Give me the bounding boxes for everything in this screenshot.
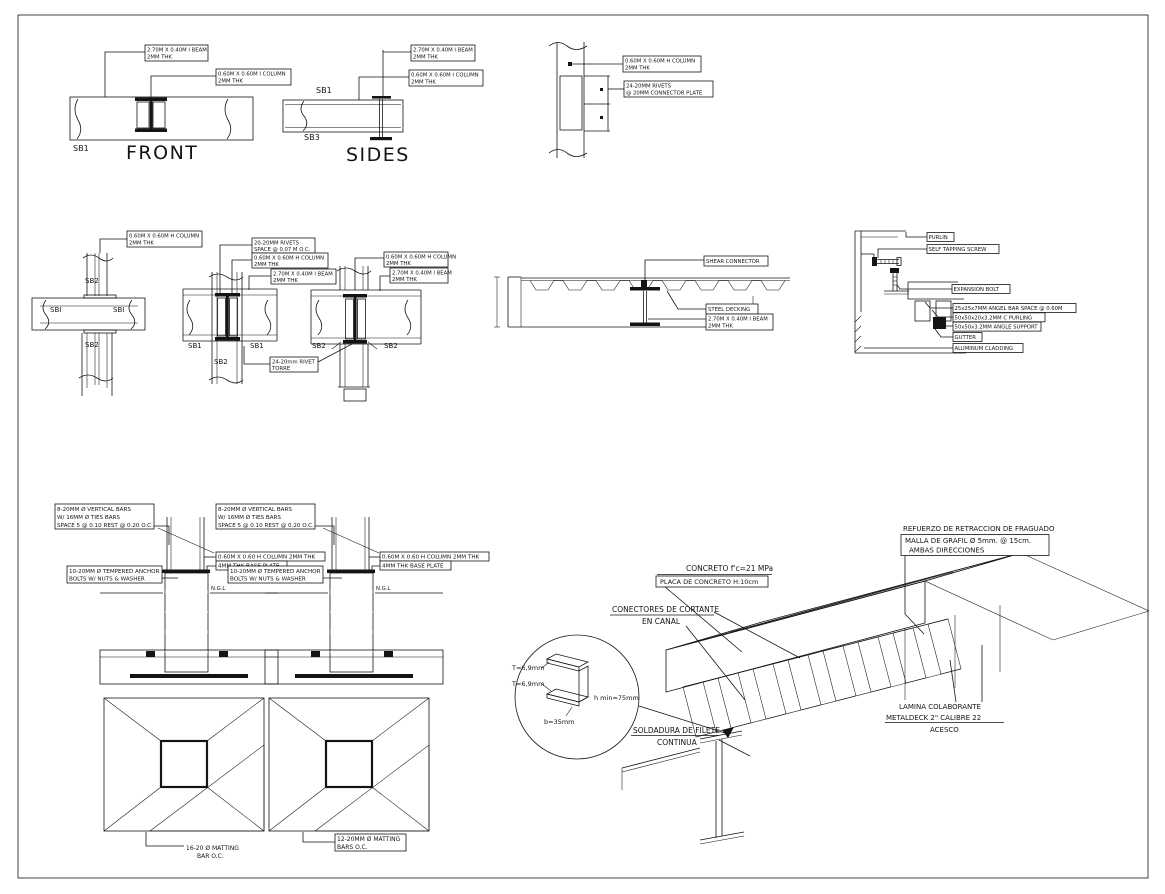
svg-text:SB2: SB2 <box>384 342 398 350</box>
svg-text:SPACE 5 @ 0.10 REST @ 0.20 O.C: SPACE 5 @ 0.10 REST @ 0.20 O.C. <box>57 523 153 529</box>
svg-text:SB2: SB2 <box>214 358 228 366</box>
soldadura-label: SOLDADURA DE FILETE <box>633 726 720 735</box>
dim-h: h min=75mm <box>594 694 639 702</box>
column-splice-detail: 0.60M X 0.60M H COLUMN 2MM THK 24-20MM R… <box>549 42 713 158</box>
dim-t1: T=6,9mm <box>511 664 544 672</box>
anchor-bolt <box>146 651 155 657</box>
footing <box>265 650 443 684</box>
conectores-label: CONECTORES DE CORTANTE <box>612 605 719 614</box>
tag-sb3: SB3 <box>304 133 320 142</box>
svg-text:SB2: SB2 <box>85 341 99 349</box>
column-top-flange <box>372 96 391 99</box>
c-purlin-label: 50x50x20x3.2MM C PURLING <box>955 315 1033 321</box>
joint-b-column-label: 0.60M X 0.60M H COLUMN <box>386 255 456 261</box>
svg-text:W/ 16MM Ø TIES BARS: W/ 16MM Ø TIES BARS <box>57 514 120 521</box>
wire-mesh <box>925 553 1149 640</box>
expansion-bolt-label: EXPANSION BOLT <box>954 287 1000 293</box>
tag-sb1: SB1 <box>73 144 89 153</box>
svg-text:2MM THK: 2MM THK <box>708 324 733 330</box>
ngl-label: N.G.L <box>376 586 390 592</box>
svg-text:BOLTS W/ NUTS & WASHER: BOLTS W/ NUTS & WASHER <box>230 577 306 583</box>
svg-text:2MM THK: 2MM THK <box>273 278 298 284</box>
purlin-label: PURLIN <box>929 235 948 241</box>
angel-bar-label: 25x25x7MM ANGEL BAR SPACE @ 0.60M <box>955 306 1063 312</box>
lamina-label: LAMINA COLABORANTE <box>899 703 981 711</box>
column-bottom-flange <box>370 137 392 140</box>
base-plate <box>327 570 375 574</box>
vertical-bars-label: 8-20MM Ø VERTICAL BARS <box>57 506 131 513</box>
angle-support-label: 50x50x3.2MM ANGLE SUPPORT <box>955 325 1039 331</box>
c-purlin <box>915 301 930 321</box>
bolt-head <box>872 257 877 266</box>
ngl-label: N.G.L <box>211 586 225 592</box>
anchor-bolts-label: 10-20MM Ø TEMPERED ANCHOR <box>230 568 321 575</box>
column-plan <box>326 741 372 787</box>
sides-title: SIDES <box>346 144 410 166</box>
svg-text:@ 20MM CONNECTOR PLATE: @ 20MM CONNECTOR PLATE <box>626 91 703 97</box>
footing <box>100 650 278 684</box>
svg-text:AMBAS DIRECCIONES: AMBAS DIRECCIONES <box>909 547 985 555</box>
splice-column-label: 0.60M X 0.60M H COLUMN <box>625 59 695 65</box>
front-column-label: 0.60M X 0.60M I COLUMN <box>218 72 286 78</box>
sides-column-label: 0.60M X 0.60M I COLUMN <box>411 73 479 79</box>
svg-text:BAR O.C.: BAR O.C. <box>197 853 224 860</box>
svg-text:SBI: SBI <box>113 306 124 314</box>
bolt-head <box>890 268 899 273</box>
connector-plate <box>560 76 582 130</box>
column-web <box>150 101 153 130</box>
cad-sheet: 2.70M X 0.40M I BEAM 2MM THK 0.60M X 0.6… <box>0 0 1165 894</box>
matting-band <box>295 674 413 678</box>
svg-text:2MM THK: 2MM THK <box>392 277 417 283</box>
joint-a-column-label: 0.60M X 0.60M H COLUMN <box>254 256 324 262</box>
vertical-bars-label: 8-20MM Ø VERTICAL BARS <box>218 506 292 513</box>
sides-view: 2.70M X 0.40M I BEAM 2MM THK 0.60M X 0.6… <box>283 45 483 166</box>
svg-text:METALDECK 2" CALIBRE 22: METALDECK 2" CALIBRE 22 <box>886 714 981 722</box>
svg-text:SPACE 5 @ 0.10 REST @ 0.20 O.C: SPACE 5 @ 0.10 REST @ 0.20 O.C. <box>218 523 314 529</box>
splice-rivets-label: 24-20MM RIVETS <box>626 84 672 90</box>
svg-text:CONTINUA: CONTINUA <box>657 738 698 747</box>
matting-label: 16-20 Ø MATTING <box>186 845 239 852</box>
concrete-face <box>666 581 925 692</box>
svg-text:SPACE @ 0.07 M O.C.: SPACE @ 0.07 M O.C. <box>254 247 311 253</box>
placa-label: PLACA DE CONCRETO H:10cm <box>660 578 758 586</box>
svg-text:2MM THK: 2MM THK <box>218 79 243 85</box>
svg-text:2MM THK: 2MM THK <box>413 55 438 61</box>
column-plan <box>161 741 207 787</box>
base-plate-label: 4MM THK BASE PLATE <box>382 564 444 570</box>
svg-text:SBI: SBI <box>50 306 61 314</box>
base-plate <box>162 570 210 574</box>
front-beam-label: 2.70M X 0.40M I BEAM <box>147 48 207 54</box>
concreto-label: CONCRETO f'c=21 MPa <box>686 564 773 573</box>
front-title: FRONT <box>126 142 198 164</box>
cladding-label: ALUMINUM CLADDING <box>955 346 1014 352</box>
front-view: 2.70M X 0.40M I BEAM 2MM THK 0.60M X 0.6… <box>70 45 291 164</box>
foundation-detail-1: N.G.L 8-20MM Ø VERTICAL BARS W/ 16MM Ø T… <box>55 504 325 860</box>
malla-label: MALLA DE GRAFIL Ø 5mm. @ 15cm. <box>905 537 1031 545</box>
svg-text:2MM THK: 2MM THK <box>129 241 154 247</box>
plan-cross-detail: 0.60M X 0.60M H COLUMN 2MM THK SB2 SBI S… <box>32 231 202 396</box>
svg-text:BARS O.C.: BARS O.C. <box>337 844 368 851</box>
screw-label: SELF TAPPING SCREW <box>929 247 988 253</box>
gutter-label: GUTTER <box>955 335 977 341</box>
rivet-plate <box>153 102 165 128</box>
joint-b-beam-label: 2.70M X 0.40M I BEAM <box>392 271 452 277</box>
shear-connector <box>641 280 647 287</box>
joint-a-rivet-note: 24-20mm RIVET <box>272 360 316 366</box>
dim-b: b=35mm <box>544 718 575 726</box>
svg-text:SB2: SB2 <box>85 277 99 285</box>
isometric-deck: T=6,9mm T=6,9mm h min=75mm b=35mm CONCRE… <box>511 525 1149 844</box>
svg-text:2MM THK: 2MM THK <box>254 262 279 268</box>
svg-text:SB2: SB2 <box>312 342 326 350</box>
dim-t2: T=6,9mm <box>511 680 544 688</box>
svg-text:2MM THK: 2MM THK <box>625 66 650 72</box>
svg-text:W/ 16MM Ø TIES BARS: W/ 16MM Ø TIES BARS <box>218 514 281 521</box>
anchor-bolts-label: 10-20MM Ø TEMPERED ANCHOR <box>69 568 160 575</box>
anchor-bolt <box>311 651 320 657</box>
joint-a-rivets-label: 20-20MM RIVETS <box>254 241 300 247</box>
sides-beam-label: 2.70M X 0.40M I BEAM <box>413 48 473 54</box>
joint-a-beam-label: 2.70M X 0.40M I BEAM <box>273 272 333 278</box>
deck-beam-label: 2.70M X 0.40M I BEAM <box>708 317 768 323</box>
svg-text:2MM THK: 2MM THK <box>386 261 411 267</box>
drawing-svg: 2.70M X 0.40M I BEAM 2MM THK 0.60M X 0.6… <box>0 0 1165 894</box>
svg-text:2MM THK: 2MM THK <box>411 80 436 86</box>
svg-text:2MM THK: 2MM THK <box>147 55 172 61</box>
svg-text:ACESCO: ACESCO <box>930 726 959 734</box>
svg-text:SB1: SB1 <box>250 342 264 350</box>
cladding-detail: PURLIN SELF TAPPING SCREW EXPANSION BOLT… <box>855 231 1076 353</box>
matting-band <box>130 674 248 678</box>
svg-text:TORRE: TORRE <box>271 366 291 372</box>
matting-label: 12-20MM Ø MATTING <box>337 836 401 843</box>
anchor-bolt <box>384 651 393 657</box>
refuerzo-label: REFUERZO DE RETRACCION DE FRAGUADO <box>903 525 1055 533</box>
steel-decking-label: STEEL DECKING <box>708 307 750 313</box>
deck-section: SHEAR CONNECTOR STEEL DECKING 2.70M X 0.… <box>494 256 790 330</box>
column-label: 0.60M X 0.60 H COLUMN 2MM THK <box>382 555 480 561</box>
svg-text:BOLTS W/ NUTS & WASHER: BOLTS W/ NUTS & WASHER <box>69 577 145 583</box>
rivet-plate <box>137 102 149 128</box>
tag-sb1: SB1 <box>316 86 332 95</box>
shear-connector-label: SHEAR CONNECTOR <box>706 259 760 265</box>
joint-a-detail: 20-20MM RIVETS SPACE @ 0.07 M O.C. 0.60M… <box>183 238 352 384</box>
svg-text:SB1: SB1 <box>188 342 202 350</box>
svg-text:EN CANAL: EN CANAL <box>642 617 681 626</box>
anchor-bolt <box>219 651 228 657</box>
cross-column-label: 0.60M X 0.60M H COLUMN <box>129 234 199 240</box>
column-label: 0.60M X 0.60 H COLUMN 2MM THK <box>218 555 316 561</box>
